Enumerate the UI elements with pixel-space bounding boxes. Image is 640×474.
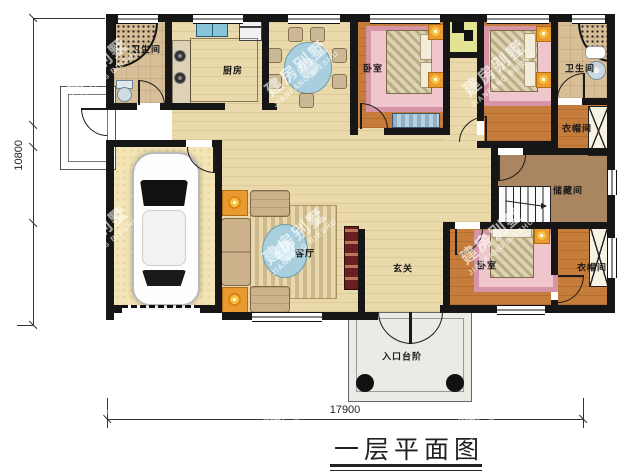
- room-label-foyer: 玄关: [393, 262, 413, 275]
- shaft-equipment-icon: [464, 30, 473, 41]
- plan-title: 一层平面图: [334, 430, 484, 466]
- room-label-entrance-steps: 入口台阶: [382, 350, 422, 363]
- window: [607, 238, 617, 278]
- end-table: [222, 287, 248, 313]
- dining-chair: [332, 74, 347, 89]
- watermark: 建房别墅JIANFANG BIESHU: [59, 368, 140, 442]
- wall-bottom-garage: [106, 305, 122, 313]
- nightstand: [428, 72, 444, 88]
- nightstand: [534, 228, 550, 244]
- window: [370, 14, 440, 24]
- wall-foyer-stub: [358, 229, 365, 312]
- dimension-extension: [33, 18, 105, 19]
- room-label-cloakroom1: 衣帽间: [562, 122, 592, 135]
- lamp-icon: [537, 231, 546, 240]
- wall-below-kitchen: [160, 103, 225, 110]
- wall-bath1-kitchen: [165, 14, 172, 110]
- title-underline-thin: [330, 470, 482, 471]
- room-label-living: 客厅: [295, 247, 315, 260]
- dimension-line-horizontal: [107, 419, 583, 420]
- lamp-icon: [228, 293, 241, 306]
- wall-bedroom1-bottom: [384, 128, 450, 135]
- wall-below-kitchen: [262, 103, 277, 110]
- wardrobe-icon: [589, 225, 609, 287]
- window: [118, 14, 158, 24]
- wall-storage-top: [523, 148, 615, 155]
- armchair: [250, 286, 290, 313]
- wall-bedroom3-top: [443, 222, 455, 229]
- pillow-icon: [524, 61, 536, 87]
- wall-bedroom3-cloak2: [551, 222, 558, 275]
- dimension-label-horizontal: 17900: [305, 404, 385, 416]
- dimension-label-vertical: 10800: [13, 140, 25, 171]
- wall-bedroom2-bath2: [551, 14, 558, 155]
- wall-bedroom1-right: [443, 14, 450, 135]
- car-roof: [142, 210, 186, 266]
- car-rear-window: [142, 270, 186, 286]
- sofa: [221, 218, 251, 286]
- lamp-icon: [539, 75, 548, 84]
- wall-bedroom3-cloak2: [551, 300, 558, 312]
- corridor2-floor: [443, 135, 498, 222]
- dining-chair: [299, 93, 314, 108]
- lamp-icon: [228, 196, 241, 209]
- porch-column-icon: [356, 374, 374, 392]
- wall-bedroom3-top: [480, 222, 615, 229]
- wall-kitchen-dining: [262, 14, 269, 103]
- end-table: [222, 190, 248, 216]
- wall-bedroom3-left: [443, 229, 450, 312]
- stairs-arrowhead: [541, 203, 547, 209]
- dining-chair: [288, 27, 303, 42]
- bath-sink-icon: [585, 46, 606, 59]
- wall-storage-left: [491, 155, 498, 222]
- room-label-bathroom2: 卫生间: [565, 62, 595, 75]
- lamp-icon: [539, 29, 548, 38]
- window: [487, 14, 549, 24]
- dresser-icon: [392, 113, 440, 128]
- dining-chair: [310, 27, 325, 42]
- wall-storage-top: [491, 148, 498, 155]
- garage-door-dashed: [122, 305, 200, 308]
- dimension-line-vertical: [33, 18, 34, 325]
- wall-bath2-bottom: [582, 98, 607, 105]
- window: [193, 14, 243, 24]
- lamp-icon: [431, 27, 440, 36]
- porch-column-icon: [446, 374, 464, 392]
- dining-table: [284, 42, 332, 94]
- dining-chair: [267, 48, 282, 63]
- lamp-icon: [431, 75, 440, 84]
- wall-left: [106, 140, 114, 320]
- stove-burner-icon: [174, 72, 186, 84]
- window: [572, 14, 605, 24]
- room-label-kitchen: 厨房: [223, 64, 243, 77]
- floor-plan: 卫生间 厨房 卧室 卫生间 衣帽间 储藏间 卧室 衣帽间 客厅 玄关 入口台阶 …: [0, 0, 640, 474]
- window: [288, 14, 340, 24]
- dimension-extension: [107, 398, 108, 428]
- pillow-icon: [524, 33, 536, 59]
- window: [252, 312, 322, 322]
- room-label-cloakroom2: 衣帽间: [577, 261, 607, 274]
- wall-bedroom2-left: [477, 14, 484, 121]
- armchair: [250, 190, 290, 217]
- toilet-bowl-icon: [117, 87, 132, 102]
- car-windshield: [140, 180, 188, 206]
- wall-below-bath1: [106, 103, 137, 110]
- wall-dining-bedroom1: [350, 14, 358, 135]
- window: [497, 305, 545, 315]
- nightstand: [428, 24, 444, 40]
- nightstand: [536, 72, 552, 88]
- room-label-storage: 储藏间: [553, 184, 583, 197]
- wall-bedroom2-bottom: [477, 141, 558, 148]
- dimension-extension: [583, 398, 584, 428]
- nightstand: [536, 26, 552, 42]
- dimension-extension: [17, 325, 33, 326]
- wall-garage-right: [215, 140, 222, 312]
- room-label-bedroom3: 卧室: [477, 259, 497, 272]
- tv-cabinet: [344, 226, 359, 290]
- stove-burner-icon: [174, 50, 186, 62]
- dining-chair: [267, 74, 282, 89]
- room-label-bathroom1: 卫生间: [131, 43, 161, 56]
- room-label-bedroom1: 卧室: [363, 62, 383, 75]
- dining-chair: [332, 48, 347, 63]
- car-icon: [132, 152, 200, 306]
- window: [607, 170, 617, 195]
- wall-garage-top: [106, 140, 186, 147]
- title-underline-thick: [330, 464, 482, 467]
- wall-left: [106, 14, 114, 105]
